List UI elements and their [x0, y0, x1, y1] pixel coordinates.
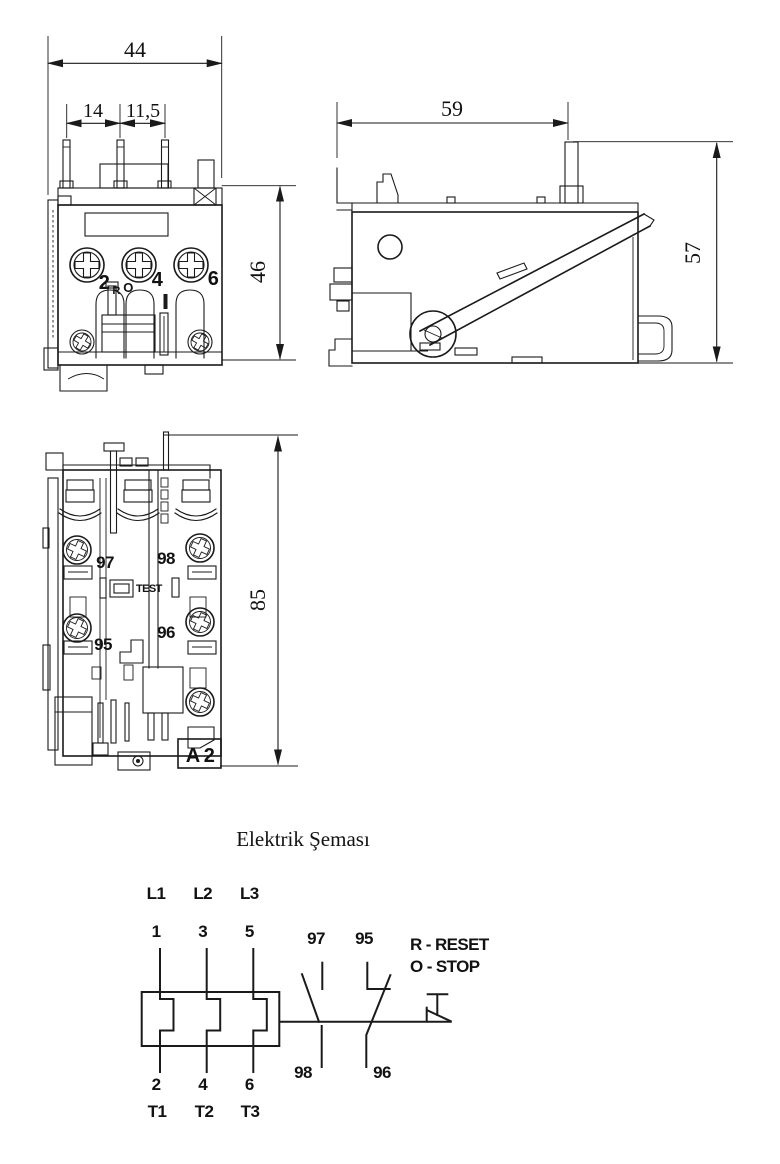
- front-stop-mark: O: [123, 280, 133, 295]
- front-terminal-6: 6: [208, 268, 219, 290]
- reset-actuator-symbol: [427, 994, 452, 1021]
- nc-contact-95-96: [366, 962, 390, 1068]
- bottom-label-95: 95: [94, 635, 112, 654]
- phillips-screw-icon: [65, 616, 89, 640]
- phillips-screw-icon: [188, 690, 212, 714]
- plunger-pin: [104, 443, 124, 451]
- line-label-L1: L1: [147, 884, 166, 903]
- bottom-label-96: 96: [157, 623, 175, 642]
- pole-label-3: 3: [198, 922, 207, 941]
- test-label: TEST: [136, 583, 163, 595]
- dim-depth-59: 59: [337, 96, 568, 158]
- side-hole: [378, 235, 402, 259]
- bottom-terminal-saddles: [59, 480, 217, 521]
- dim-label-59: 59: [441, 96, 463, 121]
- dim-label-46: 46: [245, 261, 270, 283]
- side-housing-outline: [329, 142, 672, 366]
- line-label-L2: L2: [193, 884, 212, 903]
- legend-stop: O - STOP: [410, 957, 480, 976]
- pole-label-5: 5: [245, 922, 254, 941]
- heater-elements: [142, 948, 280, 1073]
- front-terminal-4: 4: [152, 269, 164, 291]
- dim-label-44: 44: [124, 37, 146, 62]
- dim-label-11-5: 11,5: [126, 100, 160, 122]
- front-lower-detail: [60, 282, 212, 391]
- bottom-label-97: 97: [96, 553, 114, 572]
- line-label-L3: L3: [240, 884, 259, 903]
- relay-technical-drawing: 44 14 11,5 46: [0, 0, 780, 1164]
- phillips-screw-icon: [179, 253, 203, 277]
- side-view: 59 57: [329, 96, 733, 366]
- pole-label-6: 6: [245, 1075, 254, 1094]
- contact-label-97: 97: [307, 929, 325, 948]
- dim-height-57: 57: [573, 142, 733, 363]
- line-label-T1: T1: [148, 1102, 167, 1121]
- dim-height-46: 46: [222, 186, 296, 360]
- phillips-screw-icon: [189, 331, 211, 353]
- contact-label-96: 96: [373, 1063, 391, 1082]
- phillips-screw-icon: [188, 610, 212, 634]
- phillips-screw-icon: [71, 331, 93, 353]
- phillips-screw-icon: [188, 536, 212, 560]
- schematic: Elektrik Şeması L1 L2 L3 1 3 5 2 4 6 T1 …: [142, 827, 490, 1121]
- a2-terminal-label: A 2: [186, 745, 215, 767]
- legend-reset: R - RESET: [410, 935, 490, 954]
- dim-pin-pitch: 14 11,5: [67, 100, 165, 138]
- dim-label-85: 85: [245, 589, 270, 611]
- no-contact-97-98: [302, 962, 323, 1068]
- schematic-title: Elektrik Şeması: [236, 827, 370, 851]
- pole-label-4: 4: [198, 1075, 208, 1094]
- side-trip-lever: [410, 214, 654, 357]
- bottom-screws: [63, 534, 216, 748]
- line-label-T3: T3: [241, 1102, 260, 1121]
- phillips-screw-icon: [75, 253, 99, 277]
- line-label-T2: T2: [195, 1102, 214, 1121]
- front-view: 44 14 11,5 46: [44, 36, 296, 391]
- indicator-mark: [164, 294, 168, 309]
- drawing-canvas: 44 14 11,5 46: [0, 0, 780, 1164]
- din-rail-hook: [329, 339, 352, 366]
- phillips-screw-icon: [65, 538, 89, 562]
- phillips-screw-icon: [127, 253, 151, 277]
- dim-label-57: 57: [680, 242, 705, 264]
- bottom-view: 85: [43, 432, 298, 770]
- side-top-pin: [565, 142, 578, 203]
- pole-label-1: 1: [152, 922, 161, 941]
- pole-label-2: 2: [152, 1075, 161, 1094]
- contact-label-98: 98: [294, 1063, 312, 1082]
- contact-label-95: 95: [355, 929, 373, 948]
- bottom-label-98: 98: [157, 549, 175, 568]
- front-screw-terminals: [70, 248, 208, 282]
- dim-label-14: 14: [83, 100, 103, 122]
